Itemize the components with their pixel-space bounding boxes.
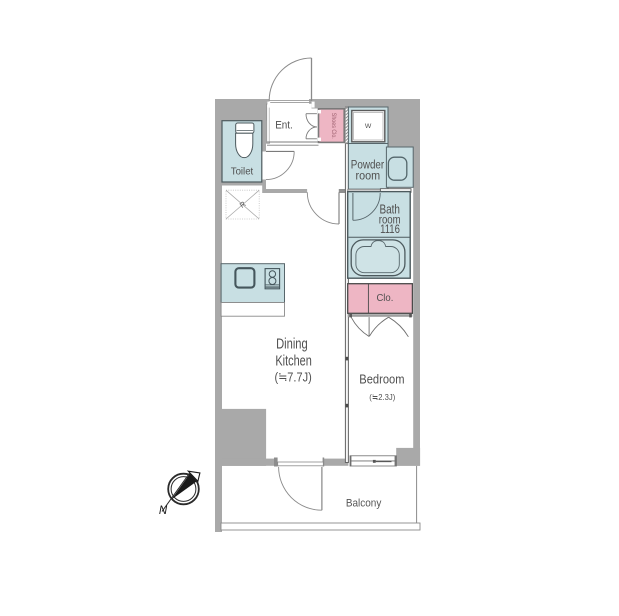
svg-text:Kitchen: Kitchen bbox=[275, 353, 312, 369]
svg-text:room: room bbox=[356, 169, 381, 183]
svg-text:(≒7.7J): (≒7.7J) bbox=[274, 370, 311, 385]
svg-text:Dining: Dining bbox=[276, 336, 308, 352]
svg-text:Toilet: Toilet bbox=[231, 167, 254, 178]
svg-text:Clo.: Clo. bbox=[376, 293, 393, 304]
svg-text:(≒2.3J): (≒2.3J) bbox=[369, 392, 395, 402]
svg-text:Ent.: Ent. bbox=[275, 119, 293, 131]
svg-text:Shoes Clo.: Shoes Clo. bbox=[330, 113, 336, 139]
svg-text:Bedroom: Bedroom bbox=[359, 373, 404, 387]
svg-text:W: W bbox=[365, 123, 372, 130]
svg-text:1116: 1116 bbox=[380, 222, 400, 236]
svg-text:N: N bbox=[159, 505, 168, 517]
svg-text:Balcony: Balcony bbox=[346, 498, 382, 510]
